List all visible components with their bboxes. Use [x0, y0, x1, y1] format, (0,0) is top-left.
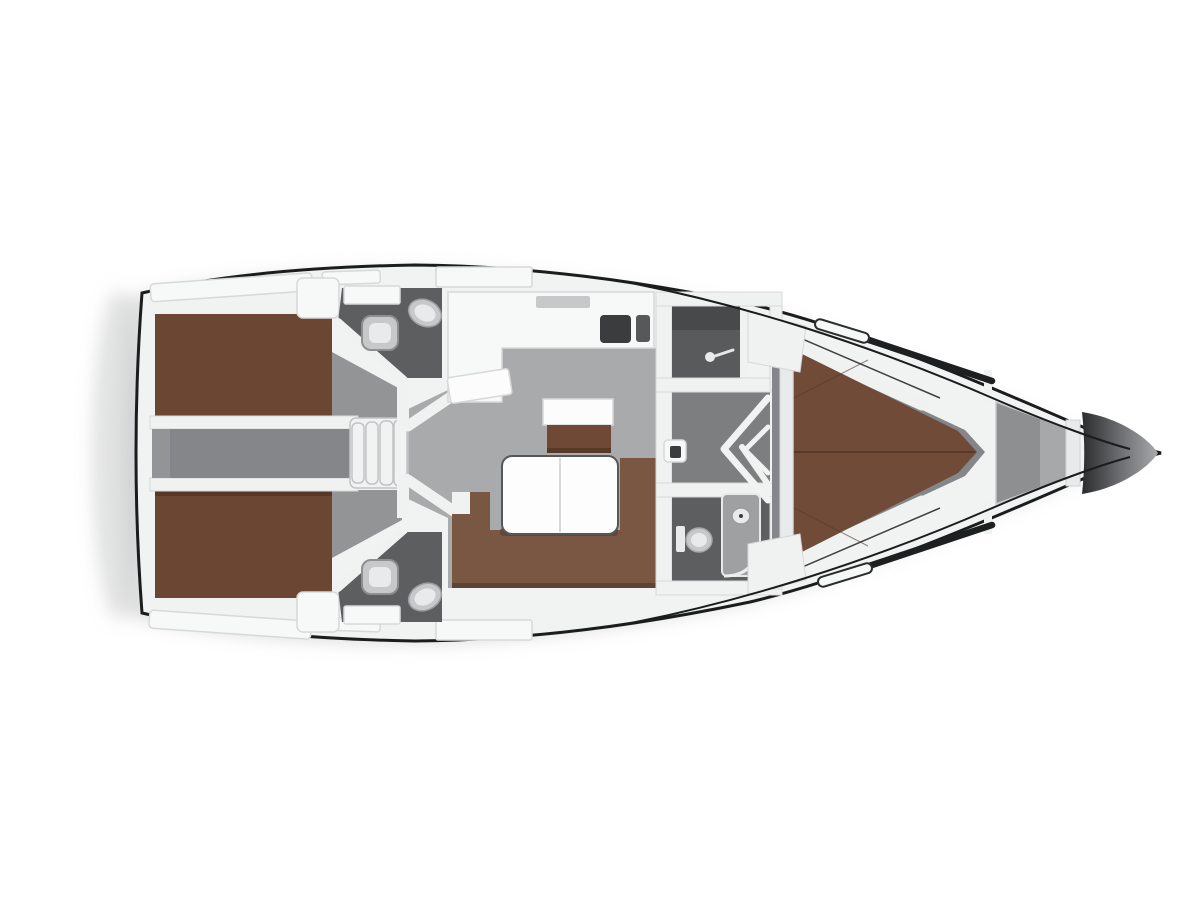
corridor-wall-panel-screen	[670, 446, 681, 458]
shower-handle-icon	[705, 352, 715, 362]
aft-starboard-sink-basin	[369, 567, 391, 587]
engine-floor-edge	[152, 429, 170, 478]
galley-sink	[600, 315, 631, 343]
floorplan-canvas	[0, 0, 1200, 900]
step-3	[380, 421, 393, 485]
aft-port-sink-basin	[369, 323, 391, 343]
aft-port-bedside-cabinet	[297, 278, 339, 318]
nav-cabinet-top	[543, 399, 613, 425]
steps-post-starboard	[397, 474, 409, 518]
shower-room-dark	[672, 306, 740, 330]
sofa-armrest	[452, 492, 470, 514]
nav-cabinet-shade	[547, 448, 611, 453]
shower-partition	[740, 306, 748, 378]
galley-stove	[536, 296, 590, 308]
coachroof-box-starboard	[436, 620, 532, 640]
engine-wall-starboard	[150, 478, 358, 491]
aft-starboard-head-counter	[344, 606, 400, 624]
step-1	[352, 423, 364, 483]
fwd-toilet-tank	[676, 526, 685, 552]
fwd-toilet-seat	[691, 533, 707, 547]
step-2	[366, 422, 378, 484]
engine-floor	[152, 429, 354, 478]
sofa-shade	[452, 583, 656, 588]
aft-starboard-bedside-cabinet	[297, 592, 339, 632]
aft-starboard-mattress	[155, 490, 332, 598]
steps-post-port	[397, 384, 409, 426]
bed-headboard	[780, 352, 793, 556]
wall-shower-corridor	[656, 378, 782, 392]
galley-sink-small	[636, 315, 650, 342]
coachroof-box-port	[436, 267, 532, 287]
aft-port-mattress	[155, 314, 332, 422]
engine-compartment	[150, 416, 358, 491]
yacht-floorplan	[0, 0, 1200, 900]
aft-port-head-counter	[344, 286, 400, 304]
fwd-head-sink-drain	[739, 514, 743, 518]
bow-tip-cone	[1082, 412, 1158, 494]
engine-wall-port	[150, 416, 358, 429]
anchor-locker-light	[1040, 418, 1066, 488]
